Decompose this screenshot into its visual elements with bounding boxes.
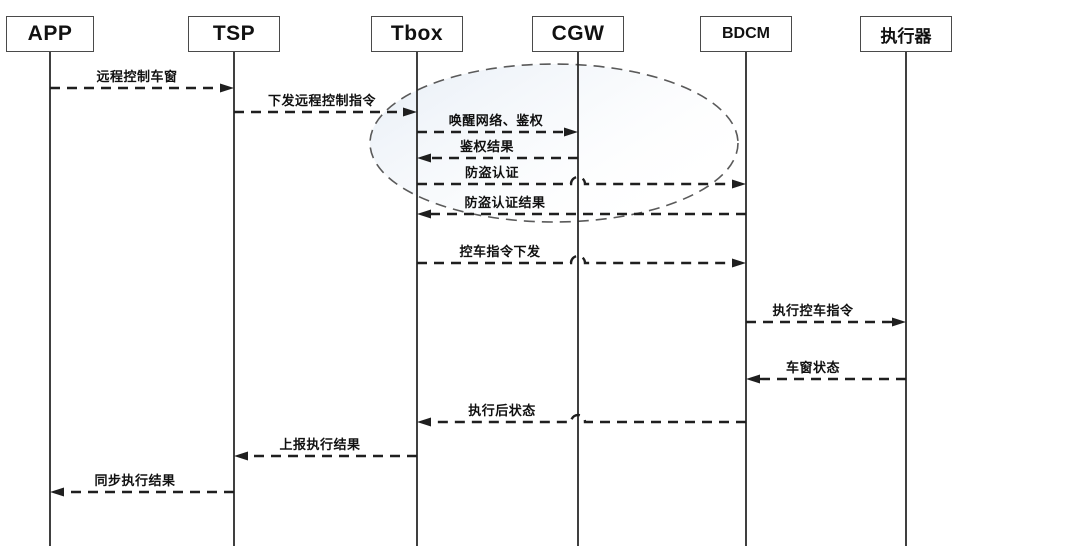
msg-antitheft-auth-result-label: 防盗认证结果: [464, 192, 545, 211]
arrowhead-remote-control-window: [220, 84, 234, 93]
msg-send-remote-control-command-label: 下发远程控制指令: [268, 90, 376, 109]
arrowhead-window-status: [746, 375, 760, 384]
arrowhead-report-execution-result: [234, 452, 248, 461]
msg-window-status-label: 车窗状态: [786, 357, 840, 376]
msg-sync-execution-result-label: 同步执行结果: [94, 470, 175, 489]
msg-auth-result-label: 鉴权结果: [460, 136, 514, 155]
msg-execute-control-command-label: 执行控车指令: [772, 300, 853, 319]
msg-report-execution-result-label: 上报执行结果: [279, 434, 360, 453]
msg-remote-control-window-label: 远程控制车窗: [96, 66, 177, 85]
actor-actuator: 执行器: [860, 16, 952, 52]
auth-scope-ellipse: [370, 64, 738, 222]
arrowhead-antitheft-auth-result: [417, 210, 431, 219]
arrowhead-execute-control-command: [892, 318, 906, 327]
arrowhead-post-execution-status: [417, 418, 431, 427]
arrowhead-sync-execution-result: [50, 488, 64, 497]
actor-tsp: TSP: [188, 16, 280, 52]
msg-vehicle-control-command-label: 控车指令下发: [459, 241, 540, 260]
actor-tbox: Tbox: [371, 16, 463, 52]
arrowhead-antitheft-auth: [732, 180, 746, 189]
msg-antitheft-auth-label: 防盗认证: [465, 162, 519, 181]
arrowhead-vehicle-control-command: [732, 259, 746, 268]
actor-bdcm: BDCM: [700, 16, 792, 52]
msg-post-execution-status-label: 执行后状态: [468, 400, 536, 419]
sequence-diagram: APP TSP Tbox CGW BDCM 执行器 远程控制车窗 下发远程控制指…: [0, 0, 1080, 549]
actor-cgw: CGW: [532, 16, 624, 52]
actor-app: APP: [6, 16, 94, 52]
msg-wake-network-auth-label: 唤醒网络、鉴权: [449, 110, 544, 129]
